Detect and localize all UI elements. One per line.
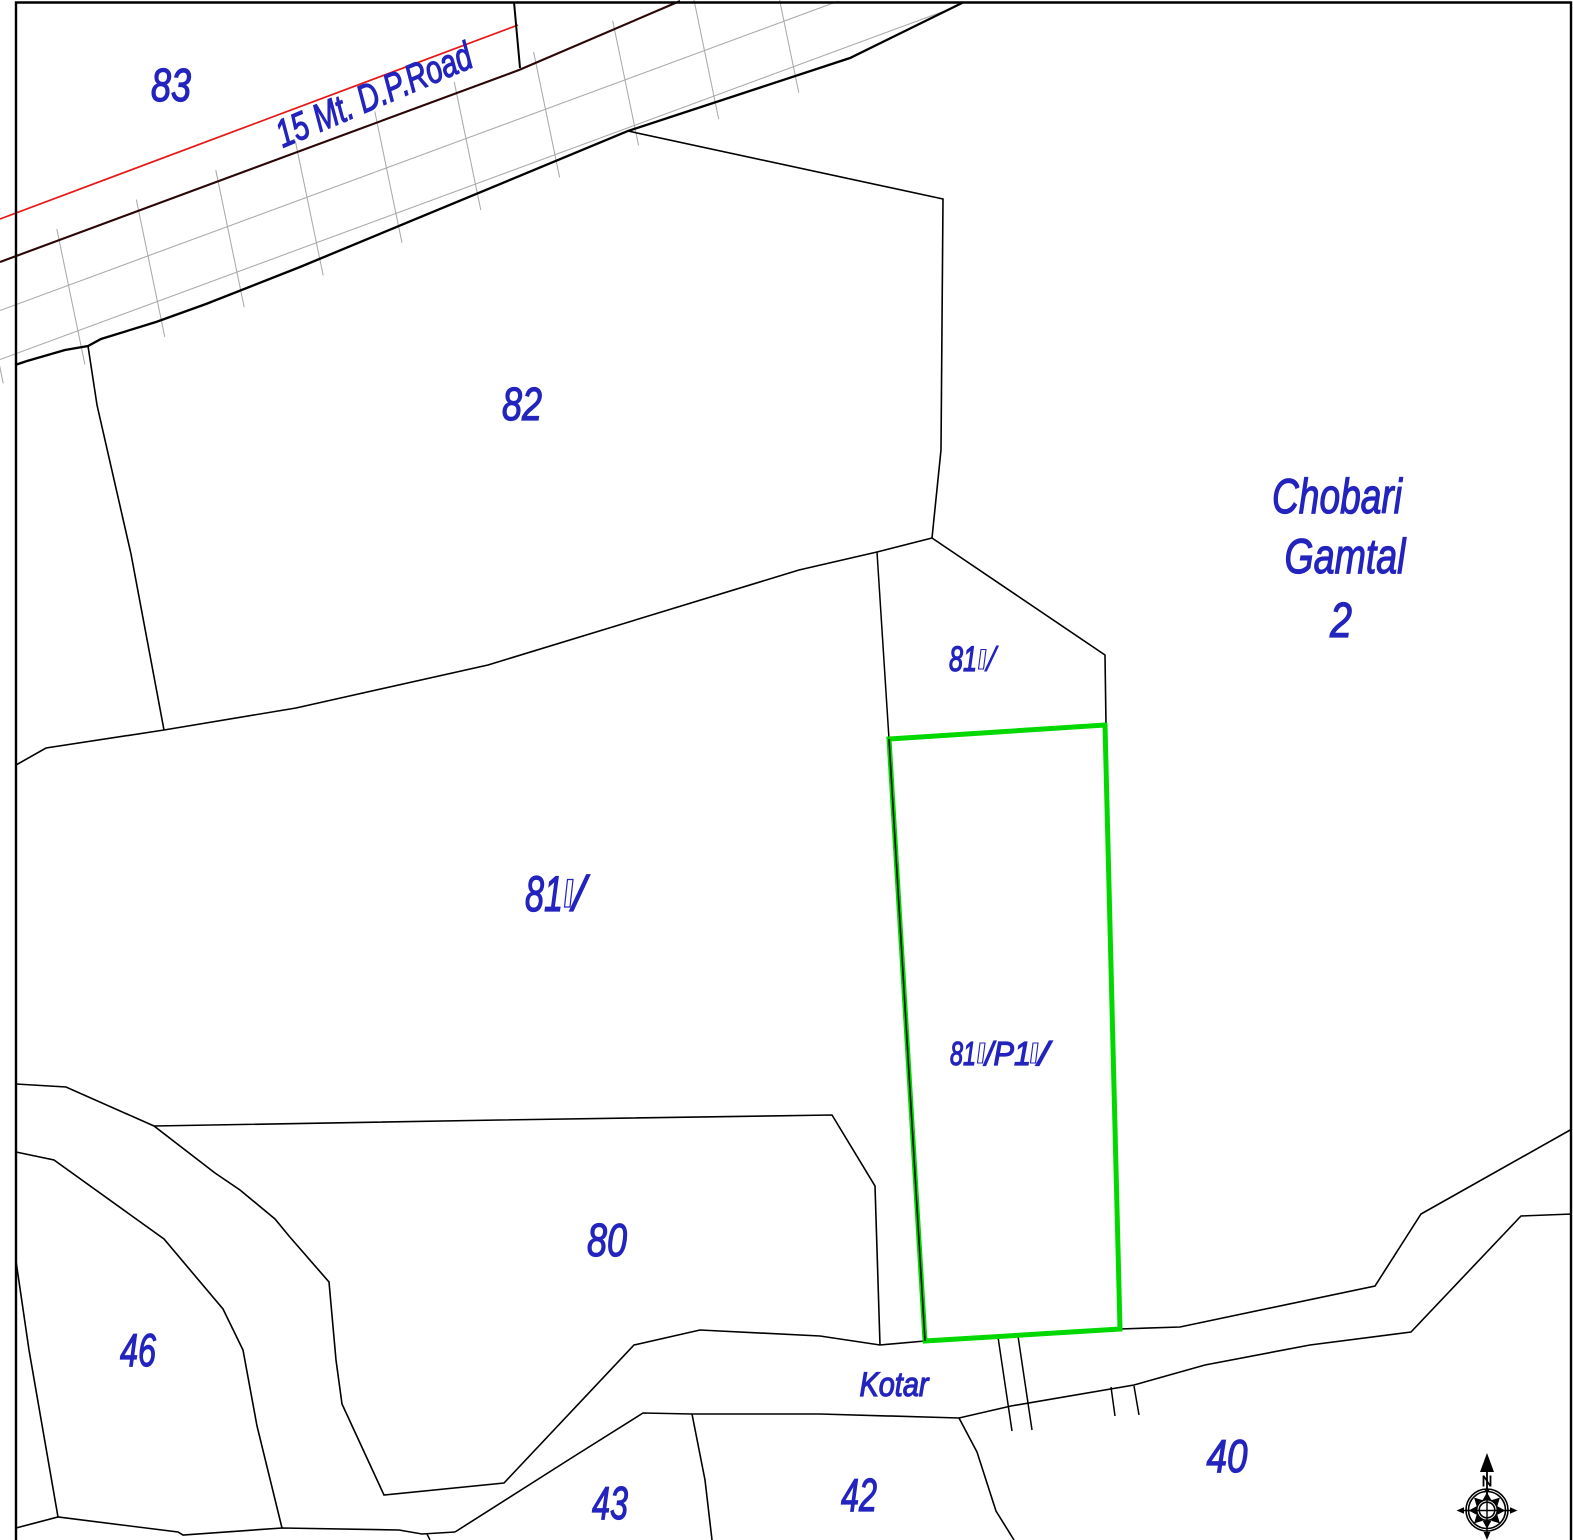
svg-text:83: 83 [151,59,191,111]
svg-text:80: 80 [587,1214,627,1266]
svg-text:82: 82 [502,378,542,430]
svg-text:2: 2 [1329,594,1352,648]
svg-text:43: 43 [592,1477,628,1529]
svg-text:42: 42 [841,1469,877,1521]
svg-text:81: 81 [949,640,977,679]
svg-text:81: 81 [950,1035,976,1072]
svg-text:Chobari: Chobari [1272,470,1403,524]
svg-text:Gamtal: Gamtal [1285,530,1407,584]
svg-text:81: 81 [525,866,563,922]
svg-text:/P1: /P1 [983,1035,1031,1072]
svg-text:Kotar: Kotar [860,1366,930,1404]
svg-text:40: 40 [1207,1430,1248,1482]
svg-text:46: 46 [120,1324,156,1376]
